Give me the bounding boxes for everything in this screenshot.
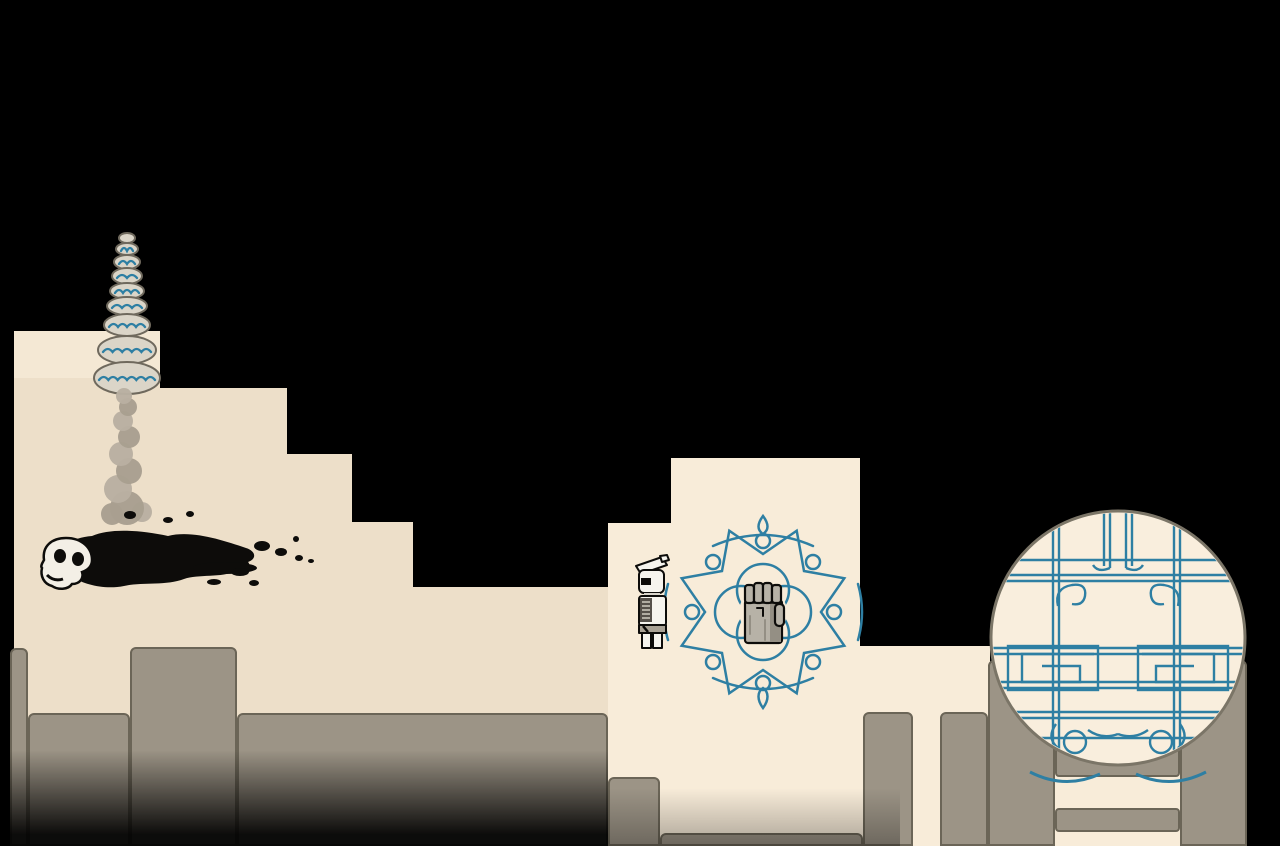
splatter-dot bbox=[163, 517, 173, 523]
skull-eye-left bbox=[54, 549, 66, 563]
emblem-top-teardrop bbox=[759, 516, 768, 534]
player-cap-tab bbox=[660, 555, 669, 562]
player-leg-right bbox=[653, 633, 662, 648]
stone-fist bbox=[745, 583, 784, 643]
scene-art bbox=[0, 0, 1280, 846]
cairn-stone bbox=[114, 255, 140, 269]
player-leg-left bbox=[642, 633, 651, 648]
cairn-totem bbox=[94, 233, 160, 394]
cairn-stone bbox=[119, 233, 135, 243]
splatter-dot bbox=[308, 559, 314, 563]
smoke-plume bbox=[101, 388, 152, 525]
splatter-dot bbox=[275, 548, 287, 556]
splatter-dot bbox=[207, 579, 221, 585]
game-viewport bbox=[0, 0, 1280, 846]
splatter-dot bbox=[249, 580, 259, 586]
cairn-stone bbox=[112, 268, 142, 284]
smoke-puff bbox=[116, 388, 132, 404]
fist-emblem-mural bbox=[664, 516, 862, 708]
charred-remains bbox=[41, 511, 314, 589]
player-visor bbox=[641, 578, 651, 585]
splatter-dot bbox=[293, 536, 299, 542]
emblem-right-arc bbox=[858, 584, 862, 640]
splatter-dot bbox=[124, 511, 136, 519]
splatter-dot bbox=[186, 511, 194, 517]
moon-gate[interactable] bbox=[991, 511, 1245, 782]
player-character[interactable] bbox=[636, 555, 669, 648]
splatter-dot bbox=[231, 568, 249, 576]
skull-eye-right bbox=[72, 552, 84, 566]
gate-under-arcs bbox=[1030, 772, 1206, 782]
gate-disc[interactable] bbox=[991, 511, 1245, 765]
splatter-dot bbox=[254, 541, 270, 551]
splatter-dot bbox=[295, 555, 303, 561]
